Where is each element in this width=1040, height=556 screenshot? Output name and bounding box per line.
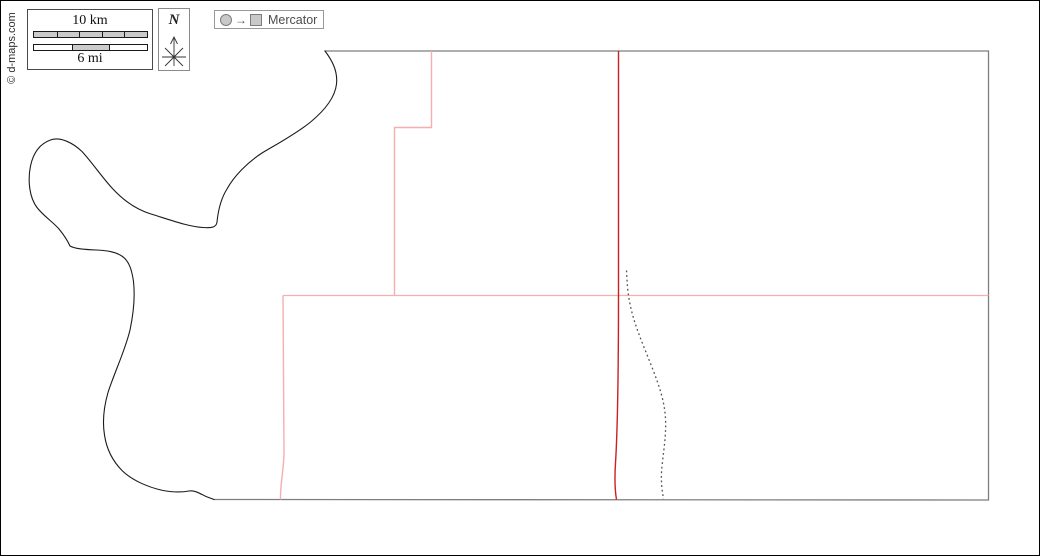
scale-tick	[72, 45, 73, 50]
scale-tick	[109, 45, 110, 50]
outline-map	[1, 1, 1040, 556]
scale-mi-middle-segment	[72, 45, 110, 50]
scale-tick	[57, 32, 58, 37]
scale-tick	[102, 32, 103, 37]
scale-bar-box: 10 km 6 mi	[27, 9, 153, 70]
projection-label: Mercator	[265, 13, 317, 27]
scale-tick	[124, 32, 125, 37]
pink-boundary-upper-path	[395, 51, 432, 296]
dashed-boundary-path	[627, 271, 666, 500]
scale-mi-bar	[33, 44, 148, 51]
projection-arrow-icon: →	[235, 14, 247, 26]
compass-star-icon	[160, 32, 188, 70]
coastline-path	[29, 51, 337, 500]
scale-km-bar	[33, 31, 148, 38]
pink-boundary-left-path	[280, 296, 284, 500]
north-label: N	[159, 12, 189, 29]
scale-mi-label: 6 mi	[28, 51, 152, 67]
map-canvas: © d-maps.com 10 km 6 mi N	[0, 0, 1040, 556]
map-edge-path	[214, 51, 989, 500]
copyright-text: © d-maps.com	[6, 9, 18, 87]
globe-circle-icon	[220, 14, 232, 26]
projection-badge: → Mercator	[214, 10, 324, 29]
flat-map-square-icon	[250, 14, 262, 26]
red-boundary-path	[615, 51, 619, 500]
scale-km-label: 10 km	[28, 13, 152, 29]
scale-tick	[79, 32, 80, 37]
compass-box: N	[158, 8, 190, 71]
